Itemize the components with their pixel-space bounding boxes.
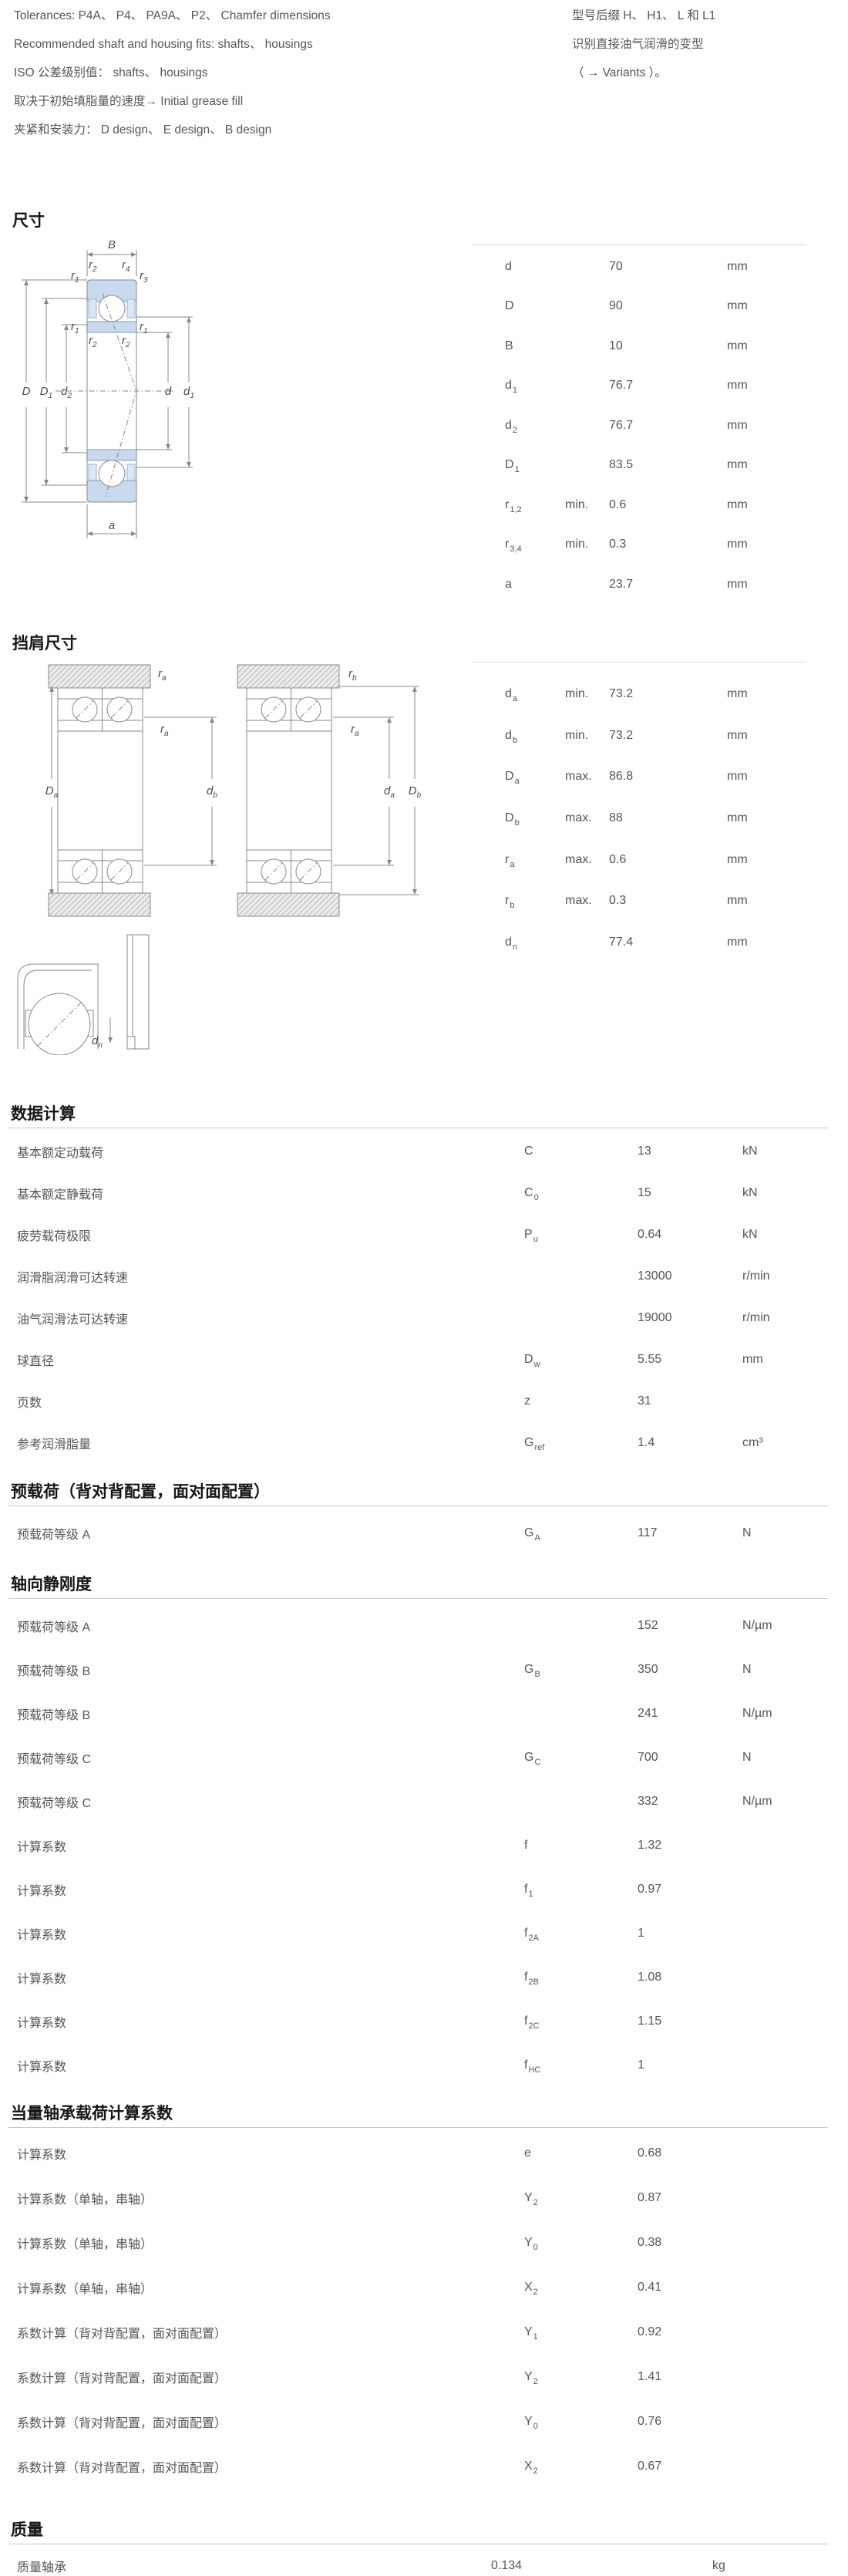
row-qualifier: max. (565, 853, 592, 867)
table-row: rbmax.0.3mm (473, 880, 806, 922)
row-value: 1.41 (638, 2370, 661, 2384)
row-symbol: C0 (524, 1186, 539, 1200)
table-row: Dbmax.88mm (473, 797, 806, 839)
diagram-label: d (165, 385, 172, 398)
row-label: 系数计算（背对背配置，面对面配置） (17, 2323, 227, 2342)
table-row: a23.7mm (473, 565, 806, 605)
row-unit: mm (727, 729, 748, 743)
row-value: 0.6 (609, 853, 626, 867)
row-symbol: X2 (524, 2281, 538, 2294)
table-row: d276.7mm (473, 406, 806, 446)
bearing-spec-page: Tolerances: P4A、 P4、 PA9A、 P2、 Chamfer d… (0, 0, 848, 2576)
table-row: 计算系数f1.32 (17, 1823, 834, 1867)
row-symbol-subscript: 2 (533, 2377, 538, 2386)
row-value: 0.87 (638, 2191, 661, 2205)
row-symbol-subscript: a (513, 694, 517, 703)
table-row: Damax.86.8mm (473, 756, 806, 797)
row-unit: cm³ (742, 1436, 763, 1450)
table-row: 预载荷等级 C332N/µm (17, 1779, 834, 1823)
abutment-drawing (18, 665, 419, 1055)
table-row: 基本额定静载荷C015kN (17, 1172, 834, 1214)
table-row: 计算系数f2B1.08 (17, 1955, 834, 1999)
row-label: 预载荷等级 B (17, 1661, 90, 1679)
diagram-label: r2 (89, 258, 97, 274)
row-label: 疲劳载荷极限 (17, 1226, 91, 1244)
row-unit: mm (742, 1353, 763, 1367)
row-value: 0.64 (638, 1228, 661, 1242)
table-row: 球直径Dw5.55mm (17, 1339, 834, 1381)
section-title-mass: 质量 (11, 2517, 43, 2541)
row-value: 13 (638, 1145, 651, 1158)
row-value: 1.15 (638, 2015, 661, 2028)
row-label: 预载荷等级 C (17, 1748, 91, 1767)
calculation-table: 基本额定动载荷C13kN基本额定静载荷C015kN疲劳载荷极限Pu0.64kN润… (17, 1128, 834, 1464)
row-unit: N (742, 1751, 752, 1765)
row-qualifier: max. (565, 894, 592, 908)
section-title-stiffness: 轴向静刚度 (11, 1572, 92, 1595)
row-unit: mm (727, 770, 748, 784)
row-label: 计算系数 (17, 2056, 66, 2075)
row-symbol: f2C (524, 2015, 540, 2028)
row-symbol-subscript: 2A (528, 1934, 538, 1943)
row-symbol: GB (524, 1663, 540, 1677)
diagram-label: d2 (61, 385, 72, 400)
row-symbol: da (505, 687, 517, 701)
row-symbol: B (505, 339, 513, 353)
row-unit: mm (727, 578, 748, 592)
intro-text-right: 型号后缀 H、 H1、 L 和 L1 识别直接油气润滑的变型 （ → Varia… (572, 2, 715, 87)
row-symbol: Y0 (524, 2415, 538, 2429)
row-symbol-subscript: 0 (534, 1193, 539, 1202)
section-title-preload: 预载荷（背对背配置，面对面配置） (11, 1479, 270, 1502)
row-symbol: z (524, 1394, 530, 1408)
table-row: 油气润滑法可达转速19000r/min (17, 1297, 834, 1339)
row-value: 350 (638, 1663, 658, 1677)
row-label: 系数计算（背对背配置，面对面配置） (17, 2368, 227, 2386)
table-row: 润滑脂润滑可达转速13000r/min (17, 1256, 834, 1297)
row-value: 332 (638, 1795, 658, 1809)
row-label: 油气润滑法可达转速 (17, 1309, 128, 1327)
row-symbol: d2 (505, 419, 517, 433)
dimensions-table: d70mmD90mmB10mmd176.7mmd276.7mmD183.5mmr… (473, 244, 806, 605)
row-symbol: r3,4 (505, 538, 522, 551)
row-value: 31 (638, 1394, 651, 1408)
row-unit: mm (727, 538, 748, 551)
row-unit: N (742, 1526, 752, 1540)
table-row: r3,4min.0.3mm (473, 525, 806, 565)
row-unit: mm (727, 687, 748, 701)
row-unit: N/µm (742, 1795, 772, 1809)
row-label: 计算系数 (17, 1968, 66, 1987)
row-label: 质量轴承 (17, 2557, 66, 2575)
row-label: 计算系数 (17, 1836, 66, 1855)
row-value: 19000 (638, 1311, 672, 1325)
diagram-label: ra (160, 723, 169, 738)
row-symbol: f1 (524, 1883, 533, 1897)
abutment-table: damin.73.2mmdbmin.73.2mmDamax.86.8mmDbma… (473, 662, 806, 963)
row-symbol: d1 (505, 379, 517, 393)
row-value: 1.32 (638, 1839, 661, 1853)
row-value: 23.7 (609, 578, 633, 592)
row-value: 1.4 (638, 1436, 655, 1450)
row-symbol-subscript: 1 (533, 2332, 538, 2342)
row-symbol-subscript: 0 (533, 2422, 538, 2431)
diagram-label: r1 (71, 269, 79, 285)
equivalent-load-table: 计算系数e0.68计算系数（单轴，串轴）Y20.87计算系数（单轴，串轴）Y00… (17, 2128, 834, 2489)
table-row: 预载荷等级 A152N/µm (17, 1603, 834, 1647)
row-label: 润滑脂润滑可达转速 (17, 1267, 128, 1286)
diagram-label: r2 (89, 334, 97, 349)
table-row: 预载荷等级 BGB350N (17, 1647, 834, 1691)
intro-line: ISO 公差级别值： shafts、 housings (14, 59, 331, 87)
row-symbol: dn (505, 936, 517, 949)
row-symbol: Y1 (524, 2325, 538, 2339)
diagram-label: ra (351, 723, 359, 738)
diagram-label: Db (409, 784, 422, 800)
row-unit: mm (727, 853, 748, 867)
table-row: dbmin.73.2mm (473, 715, 806, 757)
row-unit: kN (742, 1186, 758, 1200)
row-symbol: d (505, 260, 512, 274)
row-symbol-subscript: 2 (533, 2198, 538, 2207)
row-symbol: Y2 (524, 2370, 538, 2384)
row-symbol: X2 (524, 2460, 538, 2473)
table-row: 页数z31 (17, 1381, 834, 1422)
row-symbol-subscript: 2B (528, 1978, 538, 1987)
row-symbol-subscript: 2 (533, 2466, 538, 2476)
row-label: 计算系数 (17, 2144, 66, 2163)
diagram-label: r3 (140, 269, 148, 285)
diagram-label: a (109, 519, 115, 532)
diagram-label: d1 (183, 385, 194, 400)
row-symbol-subscript: 3,4 (510, 545, 521, 554)
row-symbol: Y2 (524, 2191, 538, 2205)
row-value: 83.5 (609, 458, 633, 472)
row-symbol-subscript: B (534, 1670, 540, 1679)
row-label: 基本额定动载荷 (17, 1142, 103, 1161)
row-value: 0.92 (638, 2325, 661, 2339)
bearing-cross-section-diagram: Br2r4r1r3r1r1r2r2DD1d2dd1a (15, 231, 204, 549)
abutment-dimensions-diagram: raraDadbrbradaDbdn (12, 662, 463, 1055)
row-symbol-subscript: 1,2 (510, 505, 521, 514)
row-value: 10 (609, 339, 623, 353)
row-label: 球直径 (17, 1350, 54, 1369)
table-row: 计算系数f2C1.15 (17, 1999, 834, 2043)
row-unit: mm (727, 498, 748, 512)
row-symbol-subscript: b (513, 736, 517, 745)
row-qualifier: min. (565, 687, 588, 701)
row-symbol: r1,2 (505, 498, 522, 512)
row-symbol: D1 (505, 458, 520, 472)
row-symbol: D (505, 299, 514, 313)
row-label: 计算系数 (17, 1880, 66, 1899)
intro-line: 夹紧和安装力： D design、 E design、 B design (14, 116, 331, 144)
row-symbol: f2B (524, 1971, 539, 1984)
table-row: 系数计算（背对背配置，面对面配置）Y00.76 (17, 2399, 834, 2444)
row-value: 0.97 (638, 1883, 661, 1897)
row-value: 0.3 (609, 538, 626, 551)
table-row: 预载荷等级 AGA117N (17, 1512, 834, 1554)
row-symbol-subscript: 2C (528, 2021, 539, 2031)
row-label: 计算系数 (17, 2012, 66, 2031)
row-value: 0.134 (491, 2559, 522, 2573)
intro-line: 取决于初始填脂量的速度→ Initial grease fill (14, 87, 331, 116)
row-symbol: Pu (524, 1228, 538, 1242)
row-symbol-subscript: b (515, 818, 520, 828)
row-value: 0.68 (638, 2146, 661, 2160)
intro-text-left: Tolerances: P4A、 P4、 PA9A、 P2、 Chamfer d… (14, 2, 331, 144)
diagram-label: D1 (40, 385, 52, 400)
section-title-abutment: 挡肩尺寸 (12, 631, 77, 654)
row-value: 0.67 (638, 2460, 661, 2473)
row-unit: mm (727, 458, 748, 472)
diagram-label: da (384, 784, 395, 800)
row-symbol: db (505, 729, 517, 743)
table-row: d70mm (473, 247, 806, 287)
row-symbol-subscript: 2 (513, 426, 517, 435)
stiffness-table: 预载荷等级 A152N/µm预载荷等级 BGB350N预载荷等级 B241N/µ… (17, 1599, 834, 2087)
row-symbol-subscript: 1 (528, 1890, 533, 1899)
row-symbol-subscript: a (515, 777, 520, 786)
table-row: 基本额定动载荷C13kN (17, 1131, 834, 1172)
row-unit: N (742, 1663, 752, 1677)
row-symbol: rb (505, 894, 514, 908)
row-unit: kg (712, 2559, 725, 2573)
row-symbol: C (524, 1145, 533, 1158)
row-symbol-subscript: a (510, 860, 514, 869)
row-unit: mm (727, 379, 748, 393)
row-label: 计算系数 (17, 1924, 66, 1943)
table-row: 参考润滑脂量Gref1.4cm³ (17, 1422, 834, 1464)
row-symbol: a (505, 578, 512, 592)
section-title-dimensions: 尺寸 (12, 208, 45, 231)
row-symbol: e (524, 2146, 531, 2160)
row-value: 76.7 (609, 419, 633, 433)
intro-line: 型号后缀 H、 H1、 L 和 L1 (572, 2, 715, 30)
diagram-label: rb (348, 667, 357, 683)
row-symbol: GA (524, 1526, 540, 1540)
row-unit: r/min (742, 1311, 770, 1325)
row-symbol-subscript: 0 (533, 2243, 538, 2252)
table-row: damin.73.2mm (473, 673, 806, 715)
row-symbol-subscript: w (534, 1360, 540, 1369)
row-value: 152 (638, 1619, 658, 1633)
row-unit: mm (727, 339, 748, 353)
row-value: 117 (638, 1526, 658, 1540)
row-label: 预载荷等级 C (17, 1792, 91, 1811)
table-row: r1,2min.0.6mm (473, 485, 806, 525)
row-symbol: Gref (524, 1436, 544, 1450)
row-value: 1 (638, 1927, 644, 1940)
row-label: 预载荷等级 B (17, 1704, 90, 1723)
table-row: 计算系数（单轴，串轴）Y00.38 (17, 2220, 834, 2265)
table-row: d176.7mm (473, 366, 806, 406)
row-symbol: f (524, 1839, 527, 1853)
mass-table: 质量轴承0.134kg (17, 2544, 834, 2576)
row-qualifier: max. (565, 770, 592, 784)
row-value: 0.3 (609, 894, 626, 908)
diagram-label: Da (45, 784, 59, 800)
diagram-label: r4 (122, 258, 130, 274)
row-value: 90 (609, 299, 623, 313)
row-label: 页数 (17, 1392, 42, 1411)
row-symbol: fHC (524, 2058, 540, 2072)
preload-table: 预载荷等级 AGA117N (17, 1506, 834, 1554)
row-qualifier: min. (565, 729, 588, 743)
row-symbol-subscript: b (510, 901, 514, 910)
row-qualifier: min. (565, 538, 588, 551)
row-symbol-subscript: 1 (515, 465, 520, 474)
row-qualifier: min. (565, 498, 588, 512)
row-label: 预载荷等级 A (17, 1524, 90, 1543)
table-row: 预载荷等级 CGC700N (17, 1735, 834, 1779)
row-unit: r/min (742, 1269, 770, 1283)
table-row: D90mm (473, 287, 806, 327)
row-symbol-subscript: u (533, 1235, 538, 1244)
row-value: 5.55 (638, 1353, 661, 1367)
row-label: 预载荷等级 A (17, 1617, 90, 1635)
row-label: 计算系数（单轴，串轴） (17, 2278, 153, 2297)
intro-line: 识别直接油气润滑的变型 (572, 30, 715, 59)
table-row: B10mm (473, 326, 806, 366)
table-row: 疲劳载荷极限Pu0.64kN (17, 1214, 834, 1256)
table-row: 计算系数f10.97 (17, 1867, 834, 1911)
row-value: 73.2 (609, 729, 633, 743)
row-qualifier: max. (565, 811, 592, 825)
table-row: 系数计算（背对背配置，面对面配置）X20.67 (17, 2444, 834, 2489)
diagram-label: r2 (122, 334, 130, 349)
row-value: 15 (638, 1186, 651, 1200)
row-label: 基本额定静载荷 (17, 1184, 103, 1202)
row-symbol: Dw (524, 1353, 540, 1367)
row-value: 0.41 (638, 2281, 661, 2294)
table-row: 计算系数f2A1 (17, 1911, 834, 1955)
table-row: 计算系数fHC1 (17, 2043, 834, 2087)
diagram-label: ra (158, 667, 167, 683)
row-unit: mm (727, 419, 748, 433)
row-label: 计算系数（单轴，串轴） (17, 2234, 153, 2252)
row-symbol: Db (505, 811, 520, 825)
row-value: 1.08 (638, 1971, 661, 1984)
row-unit: mm (727, 894, 748, 908)
table-row: ramax.0.6mm (473, 839, 806, 881)
row-value: 1 (638, 2058, 644, 2072)
row-value: 13000 (638, 1269, 672, 1283)
row-symbol-subscript: ref (534, 1443, 544, 1452)
diagram-label: D (22, 385, 31, 398)
row-unit: mm (727, 936, 748, 949)
row-value: 88 (609, 811, 623, 825)
row-label: 计算系数（单轴，串轴） (17, 2189, 153, 2207)
row-symbol: Da (505, 770, 520, 784)
diagram-label: r1 (140, 320, 148, 335)
row-unit: N/µm (742, 1707, 772, 1721)
diagram-label: B (108, 238, 116, 251)
intro-line: （ → Variants ）。 (572, 59, 715, 87)
intro-line: Recommended shaft and housing fits: shaf… (14, 30, 331, 59)
table-row: 质量轴承0.134kg (17, 2545, 834, 2576)
row-value: 86.8 (609, 770, 633, 784)
row-unit: mm (727, 811, 748, 825)
row-value: 76.7 (609, 379, 633, 393)
diagram-label: db (207, 784, 217, 800)
row-unit: mm (727, 299, 748, 313)
row-value: 0.38 (638, 2236, 661, 2250)
row-symbol-subscript: C (534, 1758, 540, 1767)
row-label: 系数计算（背对背配置，面对面配置） (17, 2457, 227, 2476)
row-symbol: Y0 (524, 2236, 538, 2250)
row-symbol-subscript: 1 (513, 386, 517, 395)
row-unit: N/µm (742, 1619, 772, 1633)
diagram-label: r1 (71, 320, 79, 335)
row-symbol: f2A (524, 1927, 539, 1940)
row-unit: mm (727, 260, 748, 274)
intro-line: Tolerances: P4A、 P4、 PA9A、 P2、 Chamfer d… (14, 2, 331, 30)
row-value: 77.4 (609, 936, 633, 949)
row-symbol-subscript: A (534, 1533, 540, 1543)
row-symbol-subscript: HC (528, 2065, 540, 2075)
row-value: 700 (638, 1751, 658, 1765)
row-value: 0.76 (638, 2415, 661, 2429)
row-symbol-subscript: n (513, 942, 517, 952)
row-symbol-subscript: 2 (533, 2288, 538, 2297)
table-row: 预载荷等级 B241N/µm (17, 1691, 834, 1735)
row-value: 70 (609, 260, 623, 274)
section-title-calculation: 数据计算 (11, 1101, 76, 1124)
row-value: 73.2 (609, 687, 633, 701)
row-symbol: GC (524, 1751, 540, 1765)
table-row: dn77.4mm (473, 922, 806, 963)
section-title-equivalent-load: 当量轴承载荷计算系数 (11, 2101, 173, 2124)
row-label: 系数计算（背对背配置，面对面配置） (17, 2412, 227, 2431)
row-value: 0.6 (609, 498, 626, 512)
table-row: 系数计算（背对背配置，面对面配置）Y21.41 (17, 2355, 834, 2399)
table-row: D183.5mm (473, 446, 806, 486)
row-label: 参考润滑脂量 (17, 1434, 91, 1452)
table-row: 系数计算（背对背配置，面对面配置）Y10.92 (17, 2310, 834, 2355)
table-row: 计算系数（单轴，串轴）Y20.87 (17, 2176, 834, 2220)
table-row: 计算系数e0.68 (17, 2131, 834, 2176)
table-row: 计算系数（单轴，串轴）X20.41 (17, 2265, 834, 2310)
row-unit: kN (742, 1228, 758, 1242)
row-unit: kN (742, 1145, 758, 1158)
row-value: 241 (638, 1707, 658, 1721)
row-symbol: ra (505, 853, 514, 867)
